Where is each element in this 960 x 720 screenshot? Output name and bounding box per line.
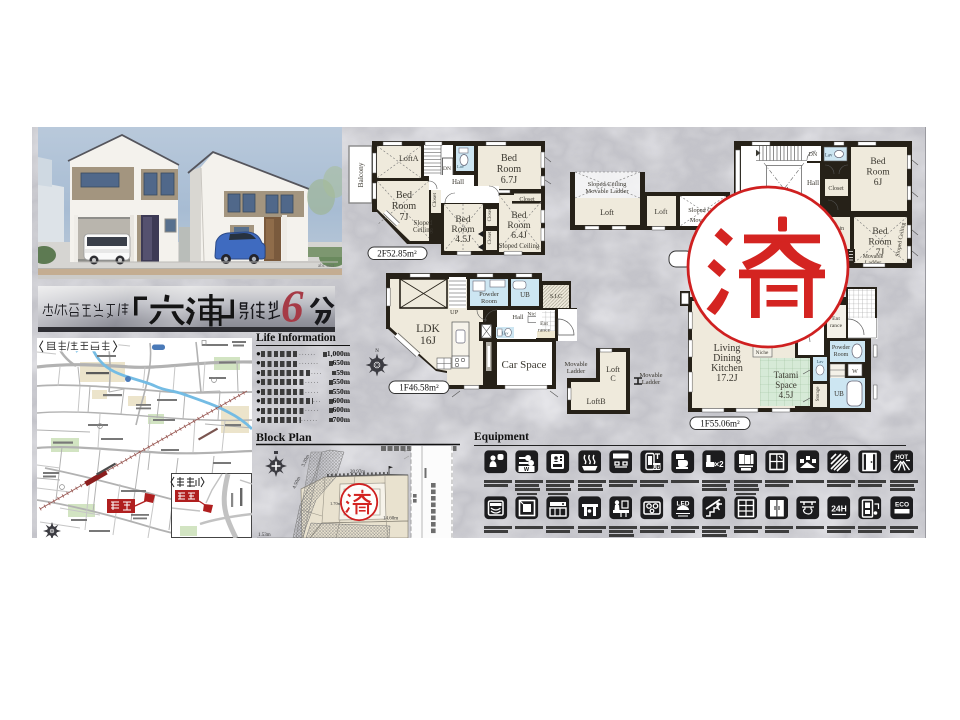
svg-text:Room: Room	[866, 168, 890, 178]
svg-text:Block Plan: Block Plan	[256, 430, 312, 444]
svg-text:Room: Room	[392, 201, 417, 212]
svg-text:Space: Space	[775, 380, 797, 390]
svg-text:LoftB: LoftB	[586, 397, 605, 406]
svg-text:4.5J: 4.5J	[779, 390, 794, 400]
svg-text:Room: Room	[507, 221, 531, 231]
svg-text:Lav: Lav	[502, 331, 509, 336]
svg-text:Closet: Closet	[432, 193, 438, 208]
svg-text:Bed: Bed	[396, 190, 412, 201]
svg-text:Room: Room	[451, 225, 475, 235]
svg-text:Tatami: Tatami	[774, 370, 799, 380]
svg-text:Lav: Lav	[825, 154, 833, 159]
svg-text:Storage: Storage	[816, 387, 821, 402]
svg-text:Loft: Loft	[600, 208, 615, 217]
svg-text:Sloped Ceiling: Sloped Ceiling	[499, 243, 540, 250]
svg-text:rance: rance	[538, 328, 551, 334]
svg-text:Room: Room	[497, 164, 522, 175]
svg-text:6J: 6J	[874, 178, 883, 188]
svg-text:N: N	[375, 349, 379, 354]
svg-text:Movable: Movable	[863, 254, 884, 260]
svg-text:Bed: Bed	[872, 227, 888, 237]
svg-text:W: W	[852, 369, 858, 375]
svg-text:4.50m: 4.50m	[292, 476, 302, 490]
svg-text:×2: ×2	[715, 460, 725, 469]
svg-text:Ent: Ent	[540, 321, 548, 327]
svg-text:ECO: ECO	[895, 502, 909, 509]
svg-text:6.4J: 6.4J	[511, 231, 527, 241]
svg-text:Bed: Bed	[511, 211, 527, 221]
svg-text:20.97m: 20.97m	[350, 470, 365, 475]
svg-text:1F46.58m²: 1F46.58m²	[399, 383, 439, 393]
svg-text:Movable: Movable	[639, 372, 662, 379]
svg-text:Powder: Powder	[479, 291, 500, 298]
svg-text:Movable Ladder: Movable Ladder	[585, 188, 629, 195]
svg-text:DN: DN	[809, 152, 818, 158]
svg-text:Room: Room	[834, 352, 849, 358]
svg-text:1F55.06m²: 1F55.06m²	[700, 419, 740, 429]
svg-text:2F52.85m²: 2F52.85m²	[377, 249, 417, 259]
svg-text:UP: UP	[450, 309, 459, 316]
svg-text:Sloped: Sloped	[414, 220, 433, 227]
svg-text:Closet: Closet	[488, 208, 493, 221]
svg-text:Ladder: Ladder	[567, 368, 586, 375]
svg-text:6.7J: 6.7J	[501, 175, 518, 186]
svg-text:1.70m: 1.70m	[330, 501, 342, 506]
svg-text:LDK: LDK	[416, 323, 440, 335]
svg-text:6: 6	[281, 286, 304, 331]
svg-text:Loft: Loft	[606, 365, 621, 374]
svg-text:24H: 24H	[831, 504, 847, 514]
svg-text:LoftA: LoftA	[399, 154, 419, 163]
svg-text:Ladder: Ladder	[642, 379, 661, 386]
svg-text:Car Space: Car Space	[502, 359, 547, 371]
svg-text:17.2J: 17.2J	[716, 373, 738, 384]
svg-text:UB: UB	[653, 465, 661, 471]
svg-text:Bed: Bed	[870, 157, 886, 167]
svg-text:C: C	[610, 374, 615, 383]
svg-text:UB: UB	[834, 390, 844, 398]
svg-text:1.53m: 1.53m	[258, 533, 271, 538]
svg-text:Sloped Ceiling: Sloped Ceiling	[588, 181, 628, 188]
svg-text:Ceiling: Ceiling	[413, 227, 434, 234]
svg-text:Hall: Hall	[512, 314, 523, 321]
svg-text:Lav: Lav	[457, 164, 465, 169]
svg-text:Closet: Closet	[519, 197, 535, 203]
svg-text:Bed: Bed	[501, 153, 517, 164]
svg-text:Movable: Movable	[564, 361, 587, 368]
svg-text:DN: DN	[443, 166, 451, 172]
svg-text:S.I.C: S.I.C	[550, 294, 562, 300]
svg-text:UB: UB	[520, 291, 530, 299]
svg-text:Balcony: Balcony	[356, 162, 365, 187]
svg-text:4.5J: 4.5J	[455, 235, 471, 245]
svg-text:W: W	[524, 467, 530, 473]
svg-text:Hall: Hall	[452, 178, 464, 186]
svg-text:Room: Room	[481, 298, 497, 305]
svg-text:Bed: Bed	[455, 215, 471, 225]
svg-text:Loft: Loft	[655, 207, 669, 216]
svg-text:16J: 16J	[420, 335, 437, 347]
svg-text:Room: Room	[868, 238, 892, 248]
svg-text:14.60m: 14.60m	[383, 517, 398, 522]
svg-text:Closet: Closet	[488, 231, 493, 244]
svg-text:Lav: Lav	[817, 359, 825, 364]
svg-text:abc sect: abc sect	[318, 264, 335, 269]
svg-text:7J: 7J	[400, 212, 409, 223]
